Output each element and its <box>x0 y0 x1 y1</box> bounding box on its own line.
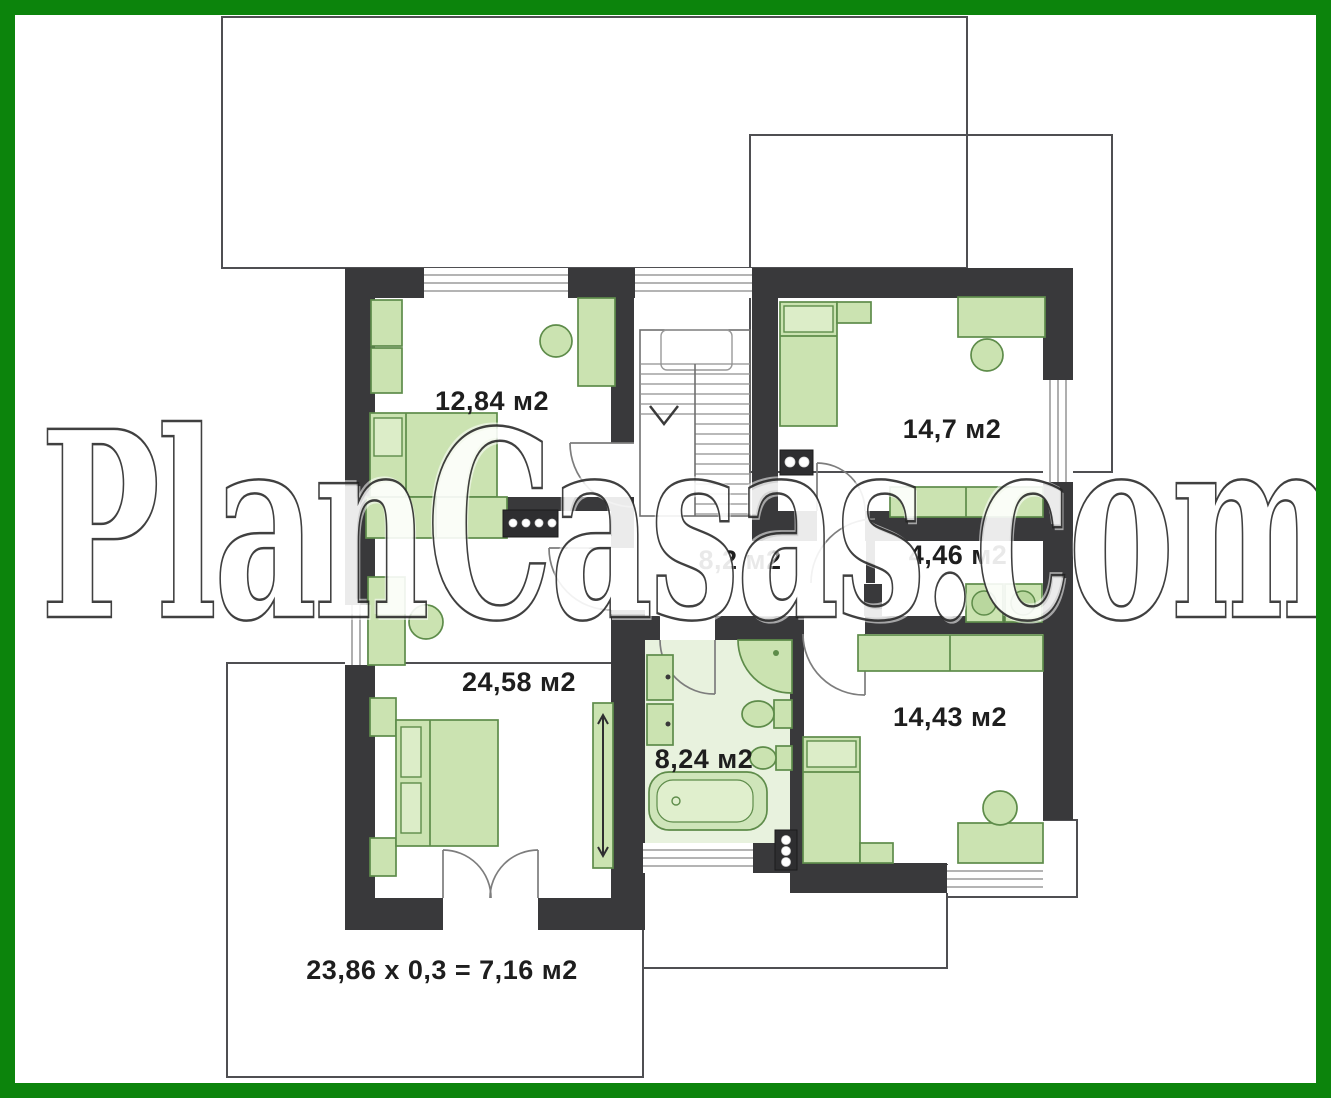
pillow <box>401 727 421 777</box>
floor-plan-page: { "watermark": { "text": "PlanCasas.com"… <box>0 0 1331 1098</box>
wardrobe <box>371 300 402 346</box>
pillow <box>784 306 833 332</box>
toilet-tank <box>774 700 792 728</box>
window-balcony-door <box>947 865 1043 893</box>
nightstand <box>370 698 396 736</box>
terrace-area-formula: 23,86 x 0,3 = 7,16 м2 <box>306 955 577 986</box>
room-label-hallway: 8,2 м2 <box>698 545 781 576</box>
pillow <box>807 741 856 767</box>
laundry-door-leaf <box>866 519 875 583</box>
nightstand <box>837 302 871 323</box>
cabinet <box>368 577 405 665</box>
room-label-bathroom: 8,24 м2 <box>655 744 754 775</box>
radiator <box>775 830 797 870</box>
roof-outline-top-left <box>222 17 967 268</box>
chair <box>409 605 443 639</box>
room-label-master-bedroom: 24,58 м2 <box>462 667 576 698</box>
window-bathroom <box>643 843 753 873</box>
room-label-bedroom-upper-right: 14,7 м2 <box>903 414 1002 445</box>
chair <box>971 339 1003 371</box>
chair <box>540 325 572 357</box>
chair <box>983 791 1017 825</box>
window-top-left <box>424 268 568 298</box>
room-label-bedroom-lower-right: 14,43 м2 <box>893 702 1007 733</box>
floor-plan-drawing <box>0 0 1331 1098</box>
bidet-tank <box>776 746 792 770</box>
window-top-stair <box>635 268 752 298</box>
pillow <box>374 418 402 456</box>
desk <box>958 297 1045 337</box>
window-right <box>1043 380 1073 482</box>
desk <box>958 823 1043 863</box>
nightstand <box>370 838 396 876</box>
desk <box>578 298 615 386</box>
bidet-bowl <box>750 747 776 769</box>
toilet-bowl <box>742 701 774 727</box>
bench <box>860 843 893 863</box>
pillow <box>401 783 421 833</box>
room-label-bedroom-upper-left: 12,84 м2 <box>435 386 549 417</box>
room-label-laundry: 4,46 м2 <box>909 540 1008 571</box>
